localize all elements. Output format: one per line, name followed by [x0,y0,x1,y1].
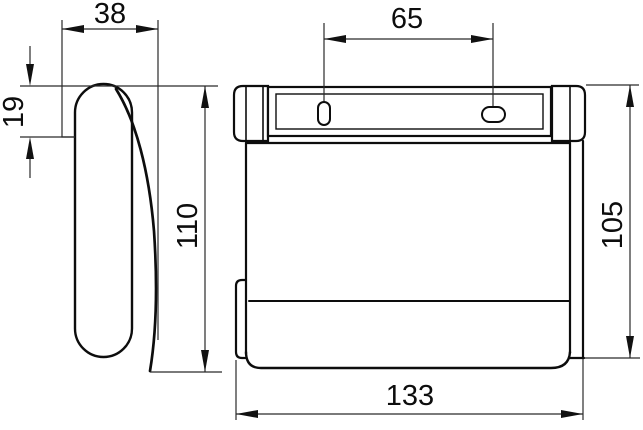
dim-label-110: 110 [172,203,204,249]
side-view [62,20,156,371]
arrowhead-up [26,137,34,159]
rail-right-endcap [552,86,585,141]
technical-dimension-drawing: 38 19 110 65 [0,0,643,430]
arrowhead-down [26,64,34,86]
dim-label-65: 65 [391,3,423,35]
dim-label-38: 38 [94,0,126,30]
arrowhead-left [62,25,84,33]
arrowhead-down [626,336,634,358]
arrowhead-right [136,25,158,33]
arrowhead-down [201,350,209,372]
arrowhead-up [626,85,634,107]
side-plate-outline [75,84,132,357]
arrowhead-left [236,410,258,418]
dim-label-19: 19 [0,96,30,128]
dim-side-height-110: 110 [150,86,222,372]
arrowhead-left [324,35,346,43]
dim-label-133: 133 [386,380,434,412]
arrowhead-right [561,410,583,418]
cover-bottom-edge [246,352,570,368]
front-view [234,86,585,368]
wall-bracket-edge [62,20,75,137]
dim-front-height-105: 105 [585,85,640,358]
arrowhead-right [471,35,493,43]
dim-label-105: 105 [597,201,629,249]
hinge-tab [236,280,246,358]
drawing-canvas: 38 19 110 65 [0,0,643,430]
arrowhead-up [201,86,209,108]
